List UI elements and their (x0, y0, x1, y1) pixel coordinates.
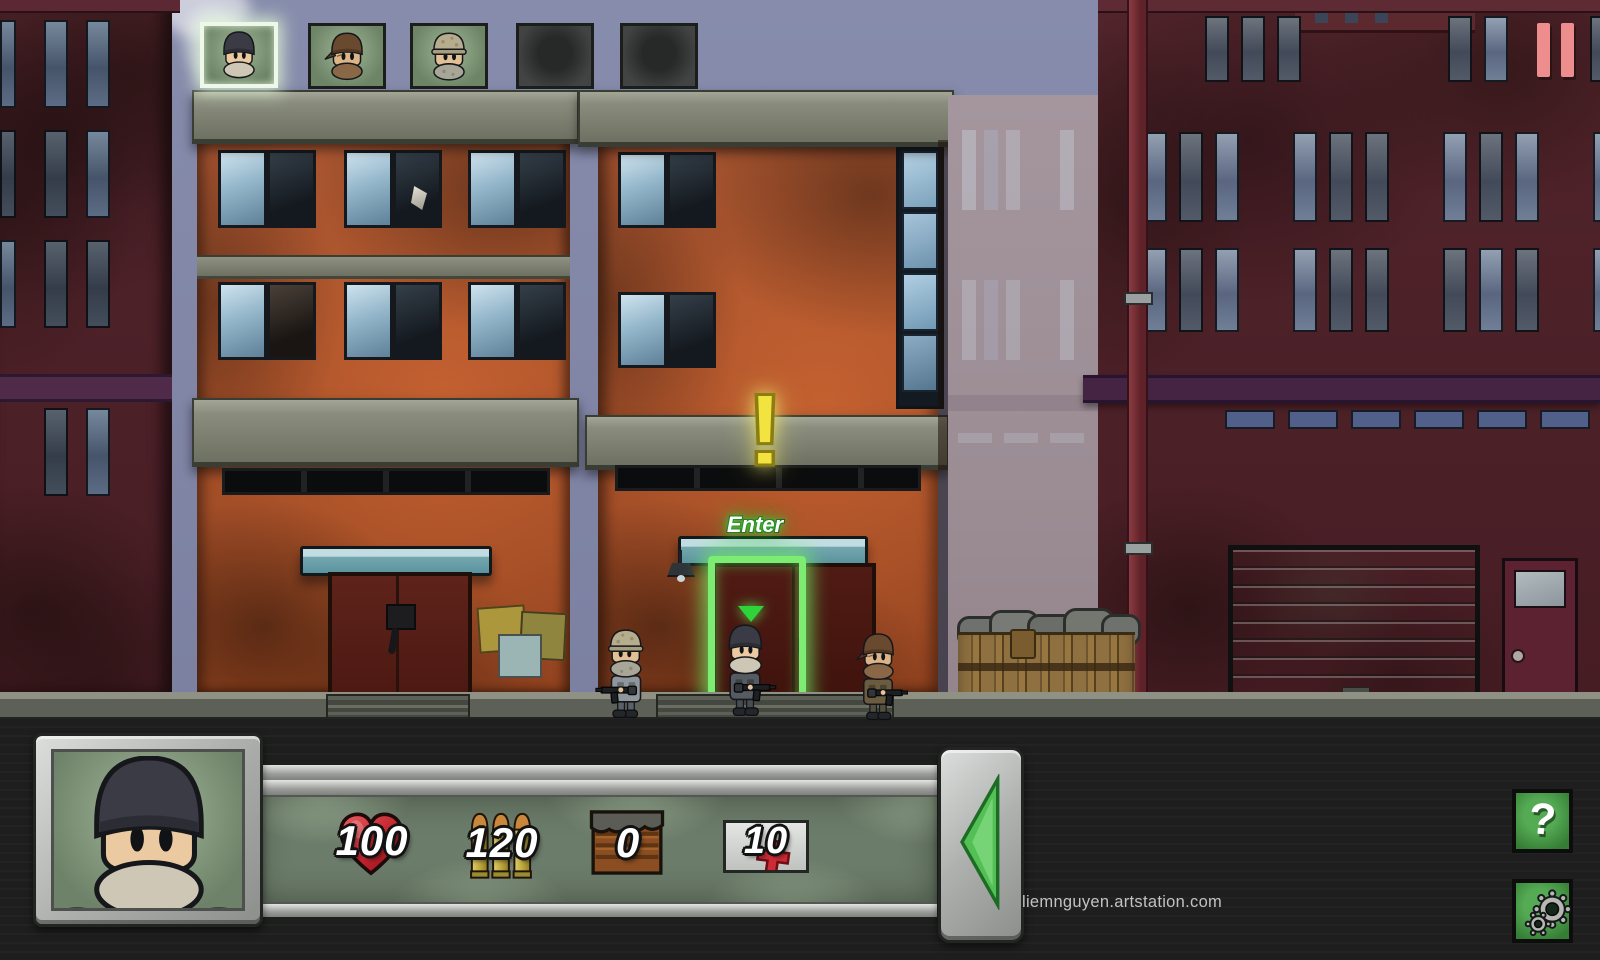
building-left-parapet (0, 0, 180, 13)
window-group (1293, 132, 1389, 222)
settings-button[interactable] (1512, 879, 1573, 943)
poster (498, 634, 542, 678)
enter-label[interactable]: Enter (700, 512, 810, 538)
alert-exclamation: ! (738, 378, 792, 482)
window-group (1593, 248, 1600, 332)
band (1083, 375, 1600, 403)
squad-slot-2[interactable] (308, 23, 386, 89)
window (86, 130, 110, 218)
transom-windows (222, 468, 550, 495)
ledge (197, 255, 570, 279)
window-group (1143, 248, 1239, 332)
building-b-roof (578, 90, 954, 147)
window (1540, 410, 1590, 429)
window-group (468, 150, 566, 228)
window (1414, 410, 1464, 429)
watermark: liemnguyen.artstation.com (1022, 893, 1302, 912)
side-door (1502, 558, 1578, 698)
squad-slot-5[interactable] (620, 23, 698, 89)
window (1590, 16, 1600, 82)
soldier-helmet[interactable] (594, 624, 658, 720)
portrait-bandana-icon (311, 26, 383, 86)
pause-button[interactable] (1537, 23, 1575, 77)
soldier-beanie-selected[interactable] (712, 620, 778, 718)
window-group (1443, 132, 1539, 222)
building-right-parapet (1098, 0, 1600, 13)
window (44, 240, 68, 328)
help-button[interactable]: ? (1512, 789, 1573, 853)
window-group (344, 282, 442, 360)
portrait-view (51, 749, 245, 911)
window (44, 130, 68, 218)
window-group (618, 292, 716, 368)
pipe-clamp (1124, 292, 1153, 305)
window (44, 408, 68, 496)
window-group (1443, 248, 1539, 332)
soldier-cap[interactable] (846, 628, 910, 722)
glass-block-column (896, 145, 944, 409)
squad-slot-4[interactable] (516, 23, 594, 89)
portrait-helmet-icon (413, 26, 485, 86)
pause-icon (1537, 23, 1550, 77)
window-group (1205, 16, 1301, 82)
window-group (1448, 16, 1508, 82)
pause-icon (1561, 23, 1574, 77)
window (1477, 410, 1527, 429)
squad-slot-3[interactable] (410, 23, 488, 89)
window-group (468, 282, 566, 360)
building-a-roof (192, 90, 579, 144)
portrait-frame[interactable] (33, 733, 263, 927)
portrait-beanie-icon (204, 26, 274, 84)
wall-lamp (666, 550, 696, 586)
window-group (344, 150, 442, 228)
window-group (1293, 248, 1389, 332)
window (44, 20, 68, 108)
window-group (618, 152, 716, 228)
garage-door (1228, 545, 1480, 705)
building-left (0, 0, 172, 692)
medkits-value: 10 (696, 820, 836, 863)
question-mark: ? (1514, 793, 1570, 847)
window (1225, 410, 1275, 429)
crates-value: 0 (558, 819, 698, 867)
window-group (1593, 132, 1600, 222)
building-a-ledge (192, 398, 579, 467)
window (0, 130, 16, 218)
ammo-value: 120 (432, 819, 572, 867)
window (86, 20, 110, 108)
window-group (218, 282, 316, 360)
window-group (218, 150, 316, 228)
window (1288, 410, 1338, 429)
window (1351, 410, 1401, 429)
arrow-left-icon (951, 774, 1007, 910)
pipe-clamp (1124, 542, 1153, 555)
health-value: 100 (302, 817, 442, 865)
building-right (1098, 0, 1600, 692)
window (0, 240, 16, 328)
window (86, 240, 110, 328)
gear-icon (1521, 887, 1571, 939)
window (86, 408, 110, 496)
game-scene: Enter ! (0, 0, 1600, 960)
portrait-soldier-beanie (52, 756, 244, 911)
window-group (1143, 132, 1239, 222)
squad-slot-1[interactable] (200, 22, 278, 88)
next-button[interactable] (938, 747, 1024, 943)
window (0, 20, 16, 108)
building-a-door (328, 572, 472, 700)
